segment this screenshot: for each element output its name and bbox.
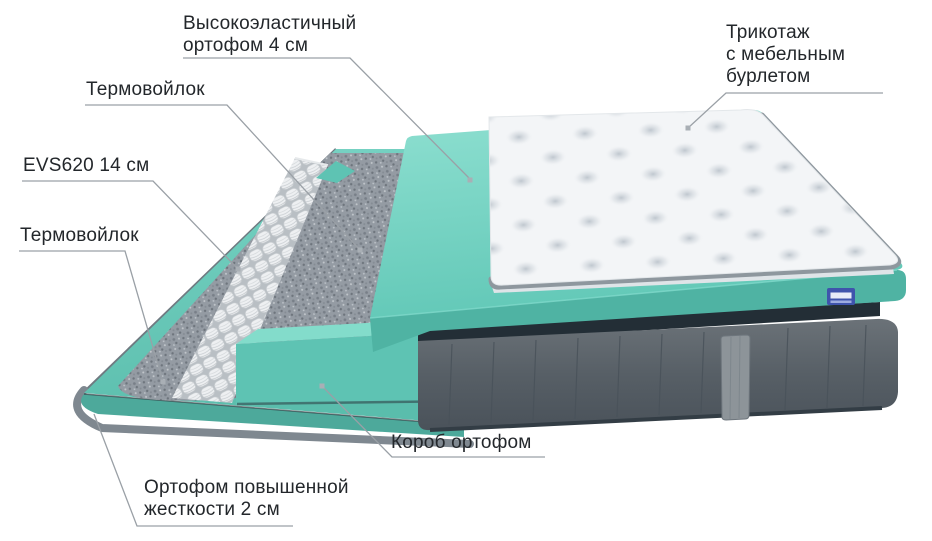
quilt-top-surface <box>489 110 898 286</box>
label-thermo-felt-bottom: Термовойлок <box>20 225 139 247</box>
label-line: ортофом 4 см <box>183 35 356 57</box>
label-line: Короб ортофом <box>391 432 532 454</box>
label-spring-block: EVS620 14 см <box>23 155 149 177</box>
brand-badge <box>827 288 855 305</box>
label-line: Термовойлок <box>86 79 205 101</box>
label-knit-cover: Трикотаж с мебельным бурлетом <box>726 22 845 88</box>
handle-strap <box>721 335 750 420</box>
label-line: Высокоэластичный <box>183 13 356 35</box>
label-line: жесткости 2 см <box>144 499 349 521</box>
label-line: Трикотаж <box>726 22 845 44</box>
label-line: Термовойлок <box>20 225 139 247</box>
label-line: Ортофом повышенной <box>144 477 349 499</box>
mattress-layers-diagram: Высокоэластичный ортофом 4 см Термовойло… <box>0 0 932 541</box>
label-thermo-felt-top: Термовойлок <box>86 79 205 101</box>
knit-cover-layer <box>489 110 899 293</box>
label-line: бурлетом <box>726 66 845 88</box>
label-foam-box: Короб ортофом <box>391 432 532 454</box>
label-elastic-foam: Высокоэластичный ортофом 4 см <box>183 13 356 57</box>
label-rigid-foam: Ортофом повышенной жесткости 2 см <box>144 477 349 521</box>
label-line: EVS620 14 см <box>23 155 149 177</box>
label-line: с мебельным <box>726 44 845 66</box>
